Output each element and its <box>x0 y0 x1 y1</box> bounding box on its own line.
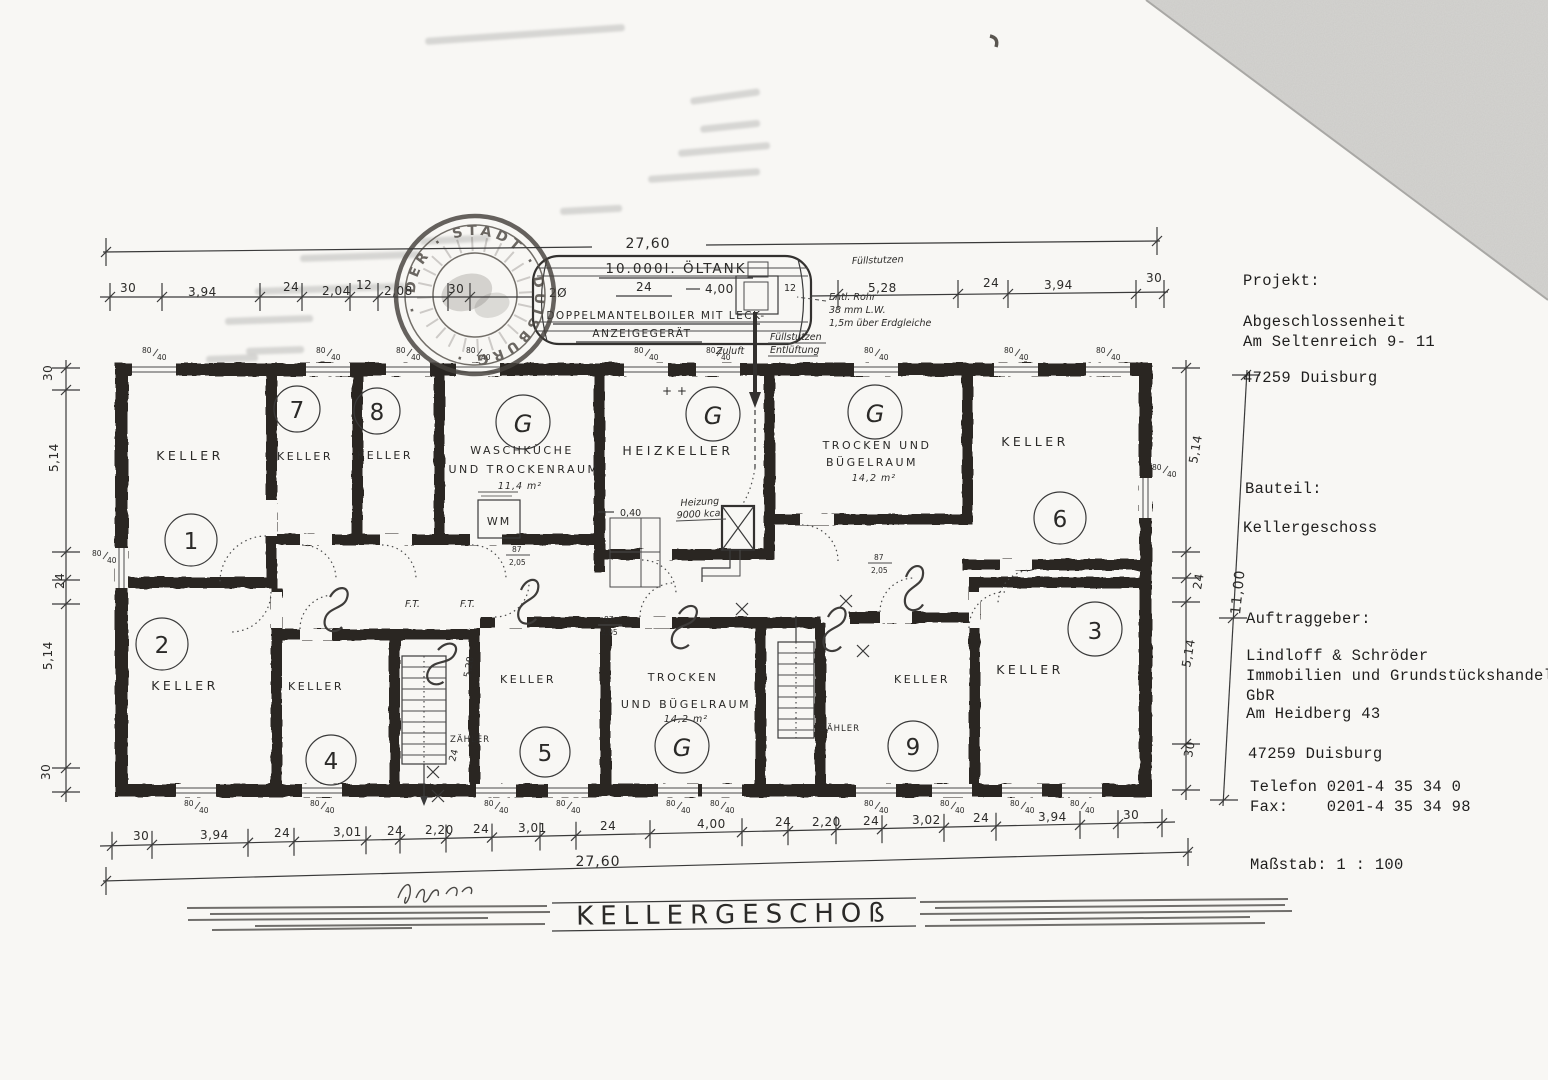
room-wasch-area: 11,4 m² <box>498 481 542 492</box>
room-trockentop-line1: TROCKEN UND <box>822 439 932 452</box>
tank-length-dim: 4,00 <box>705 282 734 296</box>
door-gap <box>470 534 502 545</box>
room-5-number: 5 <box>538 741 553 767</box>
room-2-number: 2 <box>155 633 170 659</box>
wall-segment <box>755 628 766 784</box>
scanned-floor-plan-page: 8040804080408040804080408040804080408040… <box>0 0 1548 1080</box>
wall-segment <box>600 628 611 784</box>
door-swing-arc <box>231 592 271 632</box>
ghost-text-smudge <box>225 315 313 325</box>
wall-segment <box>764 376 775 560</box>
zaehler-label-right: ZÄHLER <box>820 723 860 734</box>
client-line2: Immobilien und Grundstückshandel <box>1246 667 1548 685</box>
wall-segment <box>469 628 480 784</box>
window-size-width: 80 <box>864 799 874 808</box>
dim-left-4: 30 <box>39 764 53 780</box>
dim-bottom-1: 3,94 <box>200 828 229 842</box>
tank-dim-24: 24 <box>636 280 652 294</box>
handwritten-g-mark <box>325 588 348 631</box>
window-gap <box>306 363 350 376</box>
dim-bottom-2: 24 <box>274 826 290 840</box>
level-note: 0,40 <box>620 508 641 519</box>
drawing-title: KELLERGESCHOß <box>576 898 892 931</box>
title-block: KELLERGESCHOß <box>187 885 1292 932</box>
window-gap <box>932 784 972 797</box>
tank-capacity-label: 10.000l. ÖLTANK <box>605 259 746 277</box>
stamp-texture-line <box>420 309 433 313</box>
dim-top-0: 30 <box>120 281 136 295</box>
window-size-height: 40 <box>157 353 167 362</box>
window-size-width: 80 <box>142 346 152 355</box>
door-gap <box>300 534 332 545</box>
door-gap <box>880 612 912 623</box>
window-size-width: 80 <box>184 799 194 808</box>
title-hatch-right <box>950 917 1250 920</box>
window-size-height: 40 <box>649 353 659 362</box>
ghost-text-smudge <box>648 168 760 183</box>
room-heiz-label: HEIZKELLER <box>622 443 733 458</box>
scan-corner-artifact <box>1146 0 1548 300</box>
dim-top-2: 24 <box>283 280 299 294</box>
dim-bottom-12: 24 <box>863 814 879 828</box>
dim-left-1: 5,14 <box>47 443 61 472</box>
door-height-note: 2,05 <box>871 566 888 575</box>
tank-type-line2: ANZEIGEGERÄT <box>592 327 691 340</box>
handwritten-g-mark <box>899 565 929 611</box>
dim-bottom-5: 2,20 <box>425 823 454 837</box>
window-size-height: 40 <box>1025 806 1035 815</box>
window-size-height: 40 <box>879 353 889 362</box>
stamp-texture-line <box>425 319 439 327</box>
window-size-height: 40 <box>107 556 117 565</box>
room-8-number: 8 <box>370 400 385 426</box>
window-size-height: 40 <box>955 806 965 815</box>
tank-type-line1: DOPPELMANTELBOILER MIT LECK- <box>546 310 765 322</box>
massstab-line: Maßstab: 1 : 100 <box>1250 856 1404 874</box>
window-size-height: 40 <box>1111 353 1121 362</box>
door-swing-arc <box>880 578 914 612</box>
door-gap <box>300 629 332 640</box>
window-size-width: 80 <box>310 799 320 808</box>
room-trockenbot-line2: UND BÜGELRAUM <box>621 698 751 711</box>
room-1-label: KELLER <box>156 448 224 463</box>
door-width-note: 87 <box>512 545 522 554</box>
bauteil-label: Bauteil: <box>1245 480 1322 498</box>
window-size-width: 80 <box>706 346 716 355</box>
door-gap <box>380 534 412 545</box>
wall-segment <box>962 376 973 525</box>
dim-bottom-8: 24 <box>600 819 616 833</box>
door-gap <box>266 500 277 536</box>
window-gap <box>1086 363 1130 376</box>
title-hatch-right <box>920 911 1292 914</box>
wall-segment <box>969 577 1139 588</box>
window-gap <box>1062 784 1102 797</box>
room-trockenbot-area: 14,2 m² <box>664 714 708 725</box>
window-size-height: 40 <box>681 806 691 815</box>
title-hatch-right <box>920 899 1288 902</box>
overall-height: 11,00 <box>1228 569 1249 616</box>
title-hatch-left <box>210 912 550 914</box>
stair-dim-24: 24 <box>447 748 461 763</box>
floor-plan-drawing: 8040804080408040804080408040804080408040… <box>0 0 1548 1080</box>
ghost-text-smudge <box>206 354 258 363</box>
wall-segment <box>962 559 1139 570</box>
window-gap <box>624 363 668 376</box>
window-size-height: 40 <box>1019 353 1029 362</box>
dim-bottom-7: 3,01 <box>518 821 547 835</box>
door-swing-arc <box>802 525 838 561</box>
tank-dim-12: 12 <box>784 283 796 294</box>
wall-segment <box>389 640 400 784</box>
projekt-city: 47259 Duisburg <box>1243 369 1377 387</box>
stair-outline <box>778 642 814 738</box>
window-size-width: 80 <box>710 799 720 808</box>
window-size-width: 80 <box>396 346 406 355</box>
room-4-number: 4 <box>324 749 339 775</box>
door-gap <box>800 514 834 525</box>
wall-segment <box>1139 363 1152 797</box>
window-gap <box>856 784 896 797</box>
ghost-text-smudge <box>560 205 622 215</box>
dim-top-3: 2,04 <box>322 284 351 298</box>
dim-left-2: 24 <box>53 573 67 589</box>
ft-label-2: F.T. <box>460 599 475 610</box>
window-size-height: 40 <box>199 806 209 815</box>
room-7-label: KELLER <box>277 450 333 463</box>
room-9-label: KELLER <box>894 673 950 686</box>
ghost-text-smudge <box>678 142 770 157</box>
room-8-label: KELLER <box>357 449 413 462</box>
bauteil-value: Kellergeschoss <box>1243 519 1377 537</box>
dim-bottom-0: 30 <box>133 829 149 843</box>
tank-fuellstutzen-note-2: Füllstutzen <box>770 332 822 343</box>
door-swing-arc <box>382 545 416 579</box>
door-swing-arc <box>472 545 506 579</box>
stamp-texture-line <box>434 328 448 338</box>
tank-zuluft-note: Zuluft <box>715 346 746 357</box>
stamp-texture-line <box>519 289 533 297</box>
door-gap <box>640 549 672 560</box>
door-swing-arc <box>640 583 674 617</box>
dim-bottom-4: 24 <box>387 824 403 838</box>
door-swing-arc <box>302 545 336 579</box>
dim-top-10: 30 <box>1146 271 1162 285</box>
projekt-label: Projekt: <box>1243 272 1320 290</box>
window-gap <box>702 784 742 797</box>
ghost-text-smudge <box>425 24 625 45</box>
window-size-height: 40 <box>1167 470 1177 479</box>
title-hatch-left <box>212 928 412 930</box>
window-gap <box>994 363 1038 376</box>
dim-right-3: 30 <box>1181 740 1198 758</box>
window-size-width: 80 <box>666 799 676 808</box>
room-4-label: KELLER <box>288 680 344 693</box>
door-swing-arc <box>220 536 266 582</box>
title-hatch-left <box>255 924 545 926</box>
window-size-height: 40 <box>571 806 581 815</box>
dim-top-4: 12 <box>356 278 372 292</box>
ghost-text-smudge <box>690 88 760 105</box>
door-width-note: 87 <box>604 615 614 624</box>
wall-segment <box>266 376 277 588</box>
room-trockentop-area: 14,2 m² <box>852 473 896 484</box>
client-line3: GbR <box>1246 687 1275 705</box>
projekt-line1: Abgeschlossenheit <box>1243 313 1406 331</box>
dim-right-2: 5,14 <box>1179 638 1198 669</box>
dim-left-3: 5,14 <box>41 641 55 670</box>
dim-bottom-15: 3,94 <box>1038 810 1067 824</box>
dim-top-9: 3,94 <box>1044 278 1073 292</box>
room-trockentop-line2: BÜGELRAUM <box>826 456 918 469</box>
room-3-label: KELLER <box>996 662 1064 677</box>
stamp-texture-line <box>489 337 493 350</box>
window-size-height: 40 <box>411 353 421 362</box>
pen-mark <box>990 36 997 47</box>
projekt-line2: Am Seltenreich 9- 11 <box>1243 333 1435 351</box>
door-gap <box>1000 559 1032 570</box>
overall-width-top: 27,60 <box>625 236 670 252</box>
heizung-note-1: Heizung <box>680 496 719 509</box>
overall-width-bottom: 27,60 <box>575 854 620 870</box>
dim-bottom-16: 30 <box>1123 808 1139 822</box>
room-6-number: 6 <box>1053 507 1068 533</box>
room-trockenbot-line1: TROCKEN <box>647 671 719 684</box>
window-gap <box>658 784 698 797</box>
door-width-note: 87 <box>874 553 884 562</box>
dim-top-7: 5,28 <box>868 281 897 295</box>
window-size-width: 80 <box>1070 799 1080 808</box>
window-gap <box>854 363 898 376</box>
room-7-number: 7 <box>290 398 305 424</box>
window-size-height: 40 <box>331 353 341 362</box>
dim-bottom-14: 24 <box>973 811 989 825</box>
window-gap <box>386 363 430 376</box>
fax-line: Fax: 0201-4 35 34 98 <box>1250 798 1471 816</box>
title-hatch-right <box>935 905 1285 908</box>
title-hatch-left <box>187 906 547 908</box>
door-swing-arc <box>642 560 676 594</box>
door-height-note: 2,05 <box>601 628 618 637</box>
room-1-number: 1 <box>184 529 199 555</box>
window-size-height: 40 <box>1085 806 1095 815</box>
window-size-height: 40 <box>325 806 335 815</box>
dim-left-0: 30 <box>41 365 55 381</box>
auftraggeber-label: Auftraggeber: <box>1246 610 1371 628</box>
stair-arrowhead <box>420 796 428 806</box>
window-size-height: 40 <box>725 806 735 815</box>
title-hatch-left <box>188 918 488 920</box>
wall-segment <box>115 577 277 588</box>
dim-top-6: 30 <box>448 282 464 296</box>
ghost-text-smudge <box>700 120 760 133</box>
room-wasch-line1: WASCHKÜCHE <box>470 444 574 457</box>
window-size-width: 80 <box>316 346 326 355</box>
bottom-dimension-labels: 303,94243,01242,20243,01244,00242,20243,… <box>133 808 1139 843</box>
dim-right-1: 24 <box>1190 572 1207 590</box>
window-gap <box>302 784 342 797</box>
window-gap <box>1002 784 1042 797</box>
room-3-number: 3 <box>1088 619 1103 645</box>
window-gap <box>696 363 740 376</box>
tank-fuellstutzen-note: Füllstutzen <box>852 254 904 267</box>
signature-squiggle <box>398 885 472 904</box>
washing-machine-label: WM <box>487 515 511 528</box>
window-size-width: 80 <box>1004 346 1014 355</box>
window-size-width: 80 <box>634 346 644 355</box>
window-size-width: 80 <box>1010 799 1020 808</box>
window-size-height: 40 <box>499 806 509 815</box>
wall-segment <box>434 376 445 545</box>
wall-segment <box>764 514 973 525</box>
telefon-line: Telefon 0201-4 35 34 0 <box>1250 778 1461 796</box>
zaehler-label-left: ZÄHLER <box>450 734 490 745</box>
client-line4: Am Heidberg 43 <box>1246 705 1380 723</box>
room-5-label: KELLER <box>500 673 556 686</box>
window-size-width: 80 <box>1152 463 1162 472</box>
door-height-note: 2,05 <box>509 558 526 567</box>
title-hatch-right <box>925 923 1265 926</box>
window-size-height: 40 <box>879 806 889 815</box>
door-gap <box>271 592 282 628</box>
room-2-label: KELLER <box>151 678 219 693</box>
handwritten-g-mark <box>426 640 458 687</box>
masonry-walls <box>115 363 1152 797</box>
window-gap <box>1139 478 1152 518</box>
dim-top-5: 2,08 <box>384 284 413 298</box>
tank-entl-note-2: 38 mm L.W. <box>829 305 886 316</box>
window-gap <box>548 784 588 797</box>
room-heiz-number: G <box>704 402 723 430</box>
room-trockentop-number: G <box>866 400 885 428</box>
client-city: 47259 Duisburg <box>1248 745 1382 763</box>
window-gap <box>132 363 176 376</box>
dim-bottom-9: 4,00 <box>697 817 726 831</box>
dim-right-0: 5,14 <box>1186 434 1205 465</box>
window-size-width: 80 <box>484 799 494 808</box>
stamp-texture-line <box>517 277 530 281</box>
dim-bottom-11: 2,20 <box>812 815 841 829</box>
room-trockenbot-number: G <box>673 734 692 762</box>
door-swing-arc <box>495 583 529 617</box>
window-size-width: 80 <box>940 799 950 808</box>
client-line1: Lindloff & Schröder <box>1246 647 1428 665</box>
door-gap <box>969 592 980 628</box>
room-9-number: 9 <box>906 735 921 761</box>
dim-bottom-13: 3,02 <box>912 813 941 827</box>
wall-segment <box>115 784 1152 797</box>
room-6-label: KELLER <box>1001 434 1069 449</box>
dim-bottom-10: 24 <box>775 815 791 829</box>
ghost-text-smudge <box>246 346 304 355</box>
tank-entlueftung-note: Entlüftung <box>770 345 820 356</box>
tank-entl-note-3: 1,5m über Erdgleiche <box>829 318 932 329</box>
window-size-width: 80 <box>1096 346 1106 355</box>
window-size-width: 80 <box>556 799 566 808</box>
ft-label-1: F.T. <box>405 599 420 610</box>
dim-top-1: 3,94 <box>188 285 217 299</box>
dim-bottom-3: 3,01 <box>333 825 362 839</box>
room-wasch-number: G <box>514 410 533 438</box>
window-size-width: 80 <box>92 549 102 558</box>
room-wasch-line2: UND TROCKENRAUM <box>448 463 599 476</box>
dim-top-8: 24 <box>983 276 999 290</box>
window-size-width: 80 <box>864 346 874 355</box>
plus-marks: + + <box>662 384 687 398</box>
window-gap <box>476 784 516 797</box>
dim-bottom-6: 24 <box>473 822 489 836</box>
door-gap <box>640 617 672 628</box>
stamp-texture-line <box>446 334 458 346</box>
window-gap <box>115 548 128 588</box>
window-gap <box>176 784 216 797</box>
